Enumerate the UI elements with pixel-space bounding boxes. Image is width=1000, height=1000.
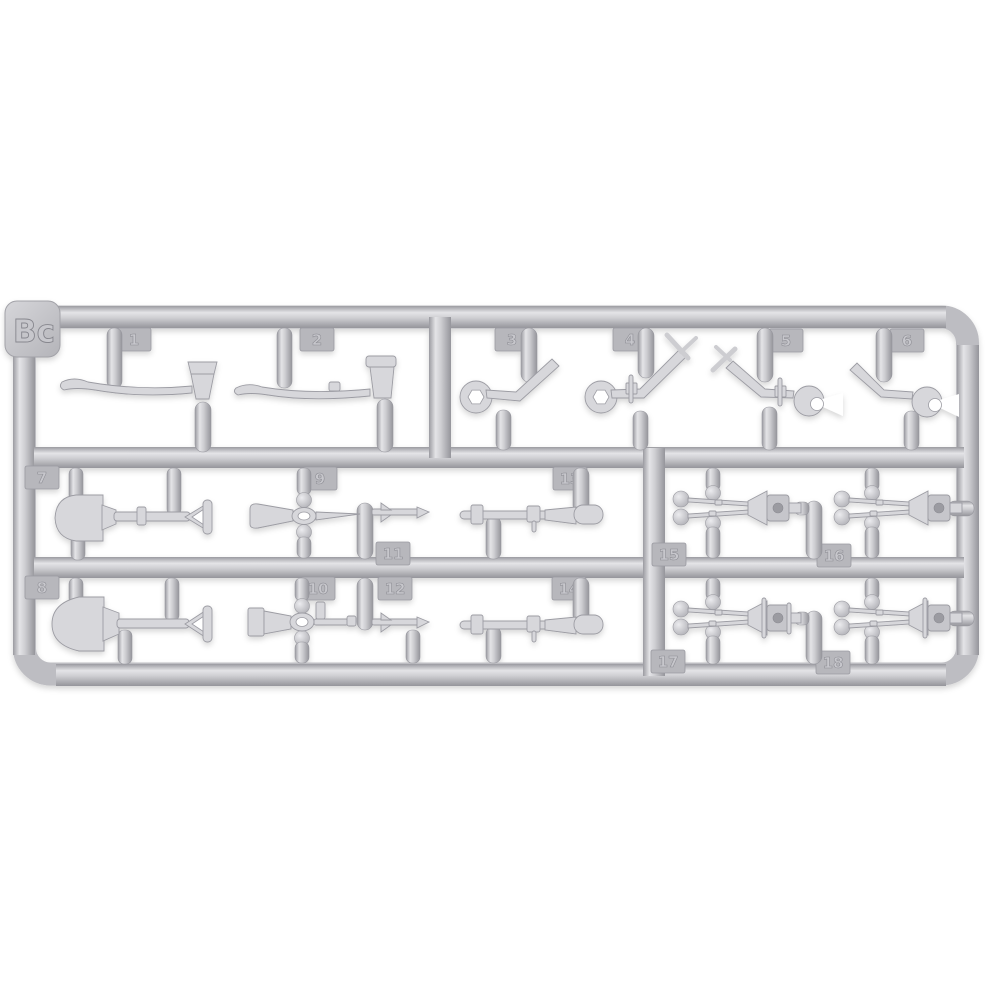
svg-text:2: 2	[312, 331, 322, 349]
part-number-tab-8: 8	[25, 576, 59, 599]
svg-text:9: 9	[315, 470, 325, 488]
part-number-tab-11: 11	[376, 542, 410, 565]
svg-text:18: 18	[823, 654, 844, 672]
part-number-tab-2: 2	[300, 328, 334, 351]
svg-text:11: 11	[383, 545, 404, 563]
svg-text:15: 15	[659, 546, 680, 564]
part-number-tab-15: 15	[652, 543, 686, 566]
model-kit-sprue-photo: 1 2 3 4 5 6 7 9 13 11 15 16 8 10 12 14 1…	[0, 0, 1000, 1000]
sprue-code-tab: Bc	[5, 301, 60, 357]
part-number-tab-6: 6	[890, 329, 924, 352]
svg-text:1: 1	[129, 331, 139, 349]
svg-text:6: 6	[902, 332, 912, 350]
part-number-tab-17: 17	[651, 650, 685, 673]
bottom-rail	[56, 664, 946, 686]
svg-text:16: 16	[824, 547, 845, 565]
svg-text:3: 3	[507, 331, 517, 349]
svg-text:8: 8	[37, 579, 47, 597]
left-rail	[13, 345, 35, 655]
svg-text:7: 7	[37, 469, 47, 487]
part-number-tab-12: 12	[378, 577, 412, 600]
svg-text:12: 12	[385, 580, 406, 598]
svg-text:17: 17	[658, 653, 679, 671]
svg-text:4: 4	[625, 331, 635, 349]
right-rail	[957, 345, 979, 655]
top-divider-rail	[429, 317, 451, 458]
svg-text:10: 10	[308, 580, 329, 598]
sprue-illustration: 1 2 3 4 5 6 7 9 13 11 15 16 8 10 12 14 1…	[0, 0, 1000, 1000]
part-number-tab-7: 7	[25, 466, 59, 489]
sprue-code-label: Bc	[13, 314, 55, 350]
part-number-tab-5: 5	[769, 329, 803, 352]
middle-rail-1	[34, 447, 964, 468]
svg-text:5: 5	[781, 332, 791, 350]
top-rail	[56, 306, 946, 328]
